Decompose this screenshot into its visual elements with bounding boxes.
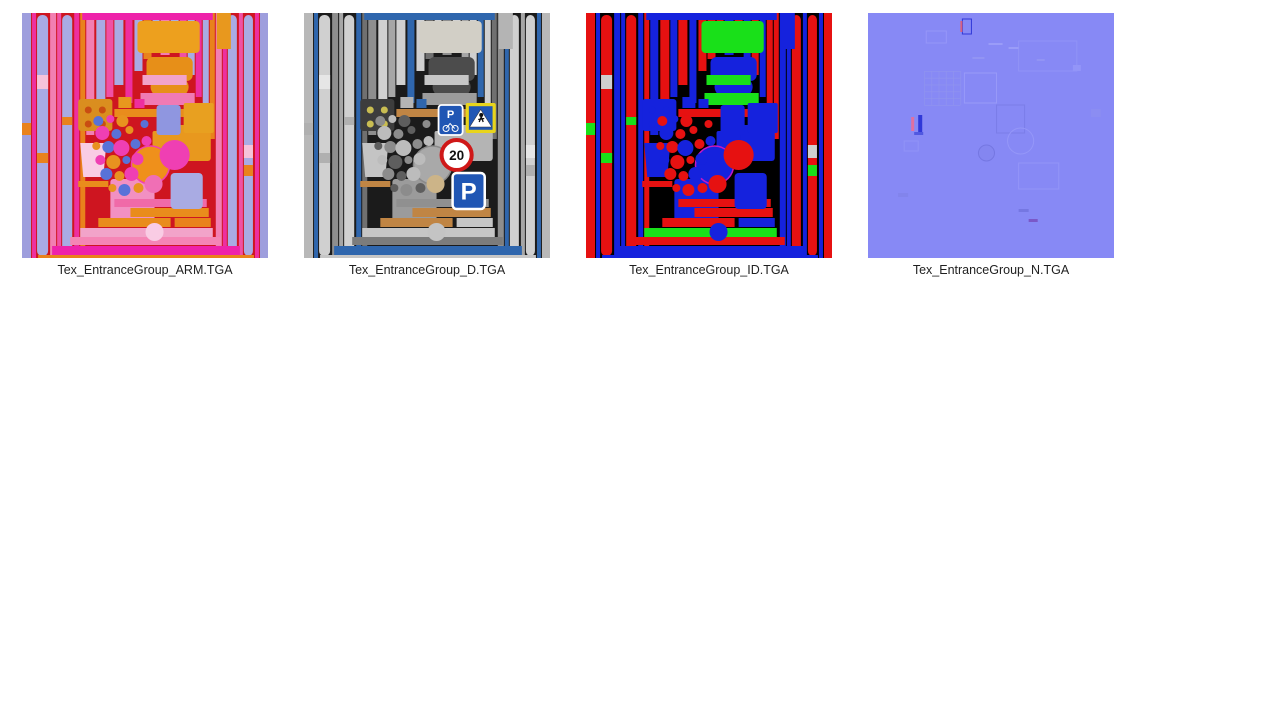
- atlas-shape: [130, 208, 208, 217]
- atlas-shape: [352, 237, 503, 245]
- atlas-shape: [102, 141, 114, 153]
- atlas-shape: [85, 121, 92, 128]
- atlas-shape: [694, 208, 772, 217]
- atlas-shape: [388, 115, 396, 123]
- atlas-shape: [646, 13, 777, 20]
- atlas-shape: [50, 13, 56, 258]
- atlas-shape: [344, 15, 354, 256]
- atlas-shape: [767, 13, 773, 117]
- atlas-shape: [642, 181, 672, 187]
- parking-bike-sign: P: [439, 105, 463, 135]
- atlas-shape: [217, 13, 231, 49]
- parking-sign: [171, 173, 203, 209]
- file-item-n[interactable]: Tex_EntranceGroup_N.TGA: [868, 13, 1114, 277]
- atlas-shape: [106, 155, 120, 169]
- atlas-shape: [95, 126, 109, 140]
- atlas-shape: [808, 165, 817, 176]
- atlas-shape: [100, 168, 112, 180]
- atlas-shape: [239, 13, 243, 258]
- atlas-shape: [404, 156, 412, 164]
- crosswalk-sign: [184, 103, 214, 133]
- atlas-shape: [739, 218, 775, 227]
- file-label[interactable]: Tex_EntranceGroup_ARM.TGA: [57, 263, 232, 277]
- atlas-shape: [74, 13, 79, 258]
- atlas-shape: [638, 13, 643, 258]
- atlas-shape: [396, 13, 405, 85]
- atlas-shape: [677, 140, 693, 156]
- atlas-shape: [824, 13, 832, 258]
- atlas-shape: [22, 13, 31, 258]
- atlas-shape: [689, 126, 697, 134]
- speed-limit-sign: 20: [442, 140, 472, 170]
- atlas-shape: [626, 117, 636, 125]
- parking-sign-letter: P: [461, 179, 477, 206]
- atlas-shape: [360, 181, 390, 187]
- atlas-shape: [381, 107, 388, 114]
- atlas-shape: [596, 13, 600, 258]
- atlas-shape: [388, 155, 402, 169]
- atlas-shape: [378, 13, 387, 113]
- atlas-shape: [649, 107, 656, 114]
- atlas-shape: [924, 71, 925, 105]
- atlas-shape: [407, 126, 415, 134]
- atlas-shape: [37, 75, 48, 89]
- atlas-shape: [419, 21, 481, 53]
- atlas-shape: [122, 156, 130, 164]
- atlas-shape: [602, 255, 818, 258]
- atlas-shape: [704, 120, 712, 128]
- atlas-shape: [255, 13, 259, 258]
- atlas-shape: [124, 167, 138, 181]
- parking-sign: [735, 173, 767, 209]
- atlas-shape: [37, 15, 48, 256]
- atlas-shape: [382, 168, 394, 180]
- atlas-shape: [698, 99, 708, 108]
- atlas-shape: [133, 183, 143, 193]
- file-item-arm[interactable]: Tex_EntranceGroup_ARM.TGA: [22, 13, 268, 277]
- texture-thumbnail-diffuse[interactable]: P20P: [304, 13, 550, 258]
- atlas-shape: [526, 165, 535, 176]
- texture-thumbnail-id[interactable]: [586, 13, 832, 258]
- atlas-shape: [314, 13, 318, 258]
- atlas-shape: [526, 15, 535, 256]
- atlas-shape: [114, 171, 124, 181]
- parking-bike-sign-letter: P: [447, 109, 454, 121]
- atlas-shape: [423, 136, 433, 146]
- atlas-shape: [586, 123, 595, 135]
- atlas-shape: [682, 97, 695, 108]
- atlas-shape: [116, 115, 128, 127]
- atlas-shape: [819, 13, 823, 258]
- atlas-shape: [108, 184, 116, 192]
- atlas-shape: [931, 71, 932, 105]
- atlas-shape: [642, 99, 676, 131]
- atlas-shape: [400, 97, 413, 108]
- atlas-shape: [125, 126, 133, 134]
- atlas-shape: [228, 15, 237, 256]
- atlas-shape: [689, 13, 696, 103]
- atlas-shape: [505, 13, 509, 258]
- atlas-shape: [390, 184, 398, 192]
- atlas-shape: [57, 13, 61, 258]
- atlas-shape: [111, 129, 121, 139]
- atlas-shape: [406, 167, 420, 181]
- atlas-shape: [686, 156, 694, 164]
- atlas-shape: [808, 145, 817, 158]
- atlas-shape: [52, 246, 240, 255]
- atlas-shape: [95, 155, 105, 165]
- atlas-shape: [113, 140, 129, 156]
- atlas-shape: [92, 142, 100, 150]
- speed-limit-sign: [724, 140, 754, 170]
- atlas-shape: [99, 107, 106, 114]
- atlas-shape: [320, 255, 536, 258]
- atlas-shape: [787, 13, 791, 258]
- atlas-shape: [659, 126, 673, 140]
- atlas-shape: [426, 175, 444, 193]
- atlas-shape: [678, 171, 688, 181]
- atlas-shape: [485, 13, 491, 117]
- atlas-shape: [375, 116, 385, 126]
- atlas-shape: [244, 165, 253, 176]
- atlas-shape: [972, 57, 984, 59]
- atlas-shape: [660, 13, 669, 113]
- atlas-shape: [499, 13, 513, 49]
- atlas-shape: [216, 13, 222, 258]
- atlas-shape: [960, 21, 962, 32]
- atlas-shape: [384, 141, 396, 153]
- atlas-shape: [924, 105, 960, 106]
- atlas-shape: [988, 43, 1002, 45]
- atlas-shape: [244, 15, 253, 256]
- atlas-shape: [946, 71, 947, 105]
- atlas-shape: [395, 140, 411, 156]
- atlas-shape: [457, 218, 493, 227]
- atlas-shape: [118, 97, 131, 108]
- atlas-shape: [670, 115, 678, 123]
- atlas-shape: [675, 129, 685, 139]
- atlas-shape: [663, 107, 670, 114]
- atlas-shape: [808, 15, 817, 256]
- atlas-shape: [621, 13, 625, 258]
- atlas-shape: [978, 145, 994, 161]
- atlas-shape: [319, 15, 330, 256]
- atlas-shape: [1029, 219, 1038, 222]
- atlas-shape: [319, 75, 330, 89]
- atlas-shape: [664, 168, 676, 180]
- atlas-shape: [223, 13, 227, 258]
- atlas-shape: [914, 132, 923, 135]
- atlas-shape: [670, 13, 677, 97]
- atlas-shape: [106, 13, 113, 97]
- atlas-shape: [377, 126, 391, 140]
- atlas-shape: [413, 153, 425, 165]
- atlas-shape: [924, 71, 960, 72]
- atlas-shape: [362, 13, 367, 258]
- atlas-shape: [396, 171, 406, 181]
- atlas-shape: [659, 155, 669, 165]
- atlas-shape: [62, 117, 72, 125]
- atlas-shape: [32, 13, 36, 258]
- atlas-shape: [424, 75, 468, 85]
- atlas-shape: [304, 123, 313, 135]
- parking-bike-sign: [157, 105, 181, 135]
- atlas-shape: [526, 145, 535, 158]
- atlas-shape: [682, 184, 694, 196]
- atlas-shape: [960, 71, 961, 105]
- atlas-shape: [319, 153, 330, 163]
- speed-limit-value: 20: [449, 148, 464, 163]
- parking-bike-sign: [721, 105, 745, 135]
- atlas-shape: [175, 218, 211, 227]
- atlas-shape: [614, 13, 620, 258]
- atlas-shape: [939, 71, 940, 105]
- atlas-shape: [708, 175, 726, 193]
- file-item-id[interactable]: Tex_EntranceGroup_ID.TGA: [586, 13, 832, 277]
- atlas-shape: [398, 115, 410, 127]
- atlas-shape: [666, 141, 678, 153]
- file-label[interactable]: Tex_EntranceGroup_N.TGA: [913, 263, 1069, 277]
- atlas-shape: [62, 15, 72, 256]
- atlas-shape: [626, 15, 636, 256]
- atlas-shape: [695, 153, 707, 165]
- atlas-shape: [93, 116, 103, 126]
- texture-thumbnail-arm[interactable]: [22, 13, 268, 258]
- atlas-shape: [339, 13, 343, 258]
- atlas-shape: [106, 115, 114, 123]
- atlas-shape: [140, 120, 148, 128]
- atlas-shape: [780, 13, 786, 258]
- atlas-shape: [705, 136, 715, 146]
- atlas-shape: [137, 21, 199, 53]
- atlas-shape: [1009, 47, 1019, 49]
- atlas-shape: [601, 153, 612, 163]
- atlas-shape: [644, 13, 649, 258]
- atlas-shape: [1073, 65, 1081, 71]
- atlas-shape: [918, 115, 922, 133]
- atlas-shape: [694, 139, 704, 149]
- atlas-shape: [706, 75, 750, 85]
- atlas-shape: [792, 15, 801, 256]
- file-label[interactable]: Tex_EntranceGroup_ID.TGA: [629, 263, 789, 277]
- pedestrian-icon: [479, 113, 483, 117]
- atlas-shape: [634, 237, 785, 245]
- atlas-shape: [701, 21, 763, 53]
- atlas-shape: [415, 183, 425, 193]
- atlas-shape: [924, 78, 960, 79]
- atlas-shape: [393, 129, 403, 139]
- atlas-shape: [85, 107, 92, 114]
- atlas-shape: [656, 142, 664, 150]
- atlas-shape: [80, 13, 85, 258]
- atlas-shape: [412, 139, 422, 149]
- atlas-shape: [244, 145, 253, 158]
- atlas-shape: [367, 107, 374, 114]
- atlas-shape: [96, 13, 105, 113]
- atlas-shape: [70, 237, 221, 245]
- atlas-shape: [367, 121, 374, 128]
- atlas-shape: [356, 13, 361, 258]
- atlas-shape: [407, 13, 414, 103]
- atlas-shape: [1037, 59, 1045, 61]
- atlas-shape: [803, 13, 807, 258]
- atlas-shape: [78, 181, 108, 187]
- atlas-shape: [898, 193, 908, 197]
- atlas-shape: [601, 75, 612, 89]
- atlas-shape: [498, 13, 504, 258]
- atlas-shape: [38, 255, 254, 258]
- atlas-shape: [141, 136, 151, 146]
- atlas-shape: [510, 15, 519, 256]
- atlas-shape: [422, 120, 430, 128]
- atlas-shape: [924, 85, 960, 86]
- atlas-shape: [601, 15, 612, 256]
- atlas-shape: [131, 153, 143, 165]
- atlas-shape: [334, 246, 522, 255]
- texture-thumbnail-normal[interactable]: [868, 13, 1114, 258]
- file-item-d[interactable]: P20P Tex_EntranceGroup_D.TGA: [304, 13, 550, 277]
- atlas-shape: [697, 183, 707, 193]
- atlas-shape: [134, 99, 144, 108]
- atlas-shape: [542, 13, 550, 258]
- atlas-shape: [374, 142, 382, 150]
- atlas-shape: [260, 13, 268, 258]
- atlas-shape: [670, 155, 684, 169]
- atlas-shape: [142, 75, 186, 85]
- atlas-shape: [400, 184, 412, 196]
- atlas-shape: [344, 117, 354, 125]
- atlas-shape: [672, 184, 680, 192]
- atlas-shape: [781, 13, 795, 49]
- atlas-shape: [203, 13, 209, 117]
- atlas-shape: [924, 98, 960, 99]
- atlas-shape: [710, 223, 728, 241]
- atlas-shape: [37, 153, 48, 163]
- parking-sign: P: [453, 173, 485, 209]
- atlas-shape: [146, 223, 164, 241]
- atlas-shape: [114, 13, 123, 85]
- atlas-shape: [649, 121, 656, 128]
- atlas-shape: [130, 139, 140, 149]
- atlas-shape: [924, 91, 960, 92]
- atlas-shape: [521, 13, 525, 258]
- atlas-shape: [416, 99, 426, 108]
- atlas-shape: [360, 99, 394, 131]
- atlas-shape: [144, 175, 162, 193]
- atlas-shape: [364, 13, 495, 20]
- atlas-shape: [680, 115, 692, 127]
- file-label[interactable]: Tex_EntranceGroup_D.TGA: [349, 263, 505, 277]
- atlas-shape: [428, 223, 446, 241]
- atlas-shape: [657, 116, 667, 126]
- atlas-shape: [304, 13, 313, 258]
- speed-limit-sign: [160, 140, 190, 170]
- atlas-shape: [678, 13, 687, 85]
- crosswalk-sign: [748, 103, 778, 133]
- file-grid: Tex_EntranceGroup_ARM.TGA P20P Tex_Entra…: [0, 0, 1280, 277]
- atlas-shape: [377, 155, 387, 165]
- atlas-shape: [537, 13, 541, 258]
- atlas-shape: [688, 167, 702, 181]
- atlas-shape: [125, 13, 132, 103]
- atlas-shape: [332, 13, 338, 258]
- atlas-shape: [953, 71, 954, 105]
- atlas-shape: [388, 13, 395, 97]
- atlas-shape: [586, 13, 595, 258]
- atlas-shape: [82, 13, 213, 20]
- atlas-shape: [1091, 109, 1101, 117]
- atlas-shape: [1019, 209, 1029, 212]
- atlas-shape: [78, 99, 112, 131]
- atlas-shape: [616, 246, 804, 255]
- atlas-shape: [22, 123, 31, 135]
- crosswalk-sign: [466, 103, 496, 133]
- atlas-shape: [911, 117, 914, 131]
- atlas-shape: [118, 184, 130, 196]
